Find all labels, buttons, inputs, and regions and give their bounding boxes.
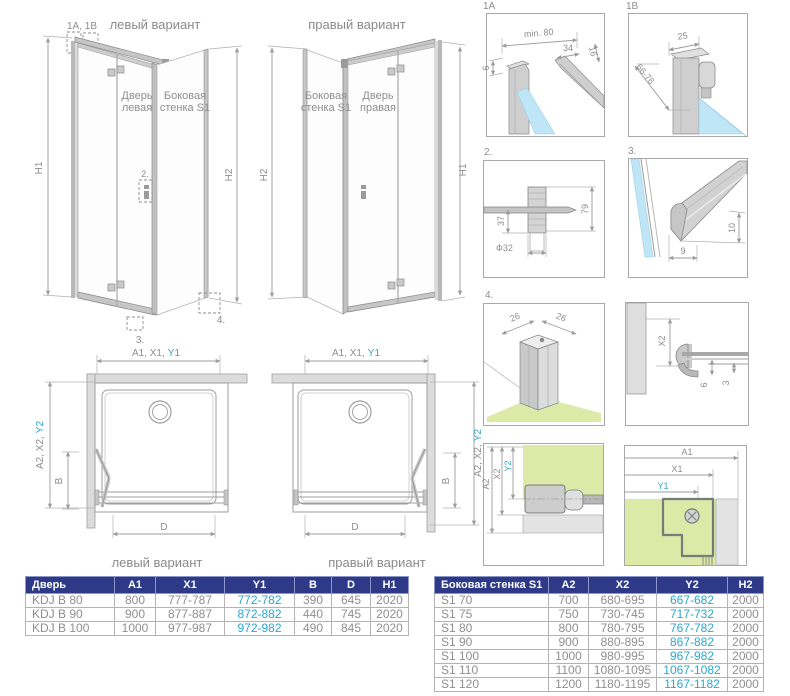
cell: 772-782 — [225, 594, 295, 608]
cell: 780-795 — [589, 622, 657, 636]
cell: 2000 — [728, 608, 764, 622]
detail-panel-2: 37 79 Ф32 — [483, 160, 605, 278]
cell: 900 — [115, 608, 156, 622]
svg-text:6: 6 — [699, 382, 709, 387]
cell: 2000 — [728, 594, 764, 608]
callout-1ab-label: 1A, 1B — [67, 21, 97, 32]
table-row: S1 100 1000 980-995 967-982 2000 — [435, 650, 764, 664]
cell: 440 — [295, 608, 332, 622]
cell: 767-782 — [657, 622, 728, 636]
table-row: KDJ B 90 900 877-887 872-882 440 745 202… — [26, 608, 409, 622]
svg-text:3: 3 — [721, 380, 731, 385]
spec-sheet: левый вариант 1A, 1B — [0, 0, 790, 696]
svg-text:34: 34 — [563, 43, 573, 53]
callout-2-label: 2. — [141, 169, 149, 179]
header-cell: A2 — [549, 577, 589, 594]
door-right-label: Дверь — [362, 90, 393, 102]
side-wall-panel — [303, 49, 343, 314]
door-panel — [78, 43, 155, 315]
cell: 800 — [115, 594, 156, 608]
x2-dimension: X2 — [646, 319, 680, 366]
wall — [627, 303, 646, 394]
wall — [523, 515, 603, 533]
cell: KDJ B 80 — [26, 594, 115, 608]
cell: 1100 — [549, 664, 589, 678]
detail-1b-drawing: 25 66-76 — [629, 14, 747, 136]
cell: 390 — [295, 594, 332, 608]
side-wall-table: Боковая стенка S1 A2 X2 Y2 H2 S1 70 700 … — [434, 576, 764, 692]
b-dimension: B — [54, 452, 79, 509]
detail-1a-number: 1A — [483, 1, 495, 12]
door-table-header-row: Дверь A1 X1 Y1 B D H1 — [26, 577, 409, 594]
shower-tray — [293, 383, 427, 512]
side-dimension: A2, X2,Y2 — [430, 382, 484, 525]
cell: 967-982 — [657, 650, 728, 664]
cell: KDJ B 90 — [26, 608, 115, 622]
door-left-label: Дверь — [121, 90, 152, 102]
detail-panel-wall-fixing: X2 6 3 — [625, 302, 749, 426]
svg-text:X2: X2 — [657, 335, 667, 346]
plan-left-drawing: A1, X1,Y1 — [35, 345, 265, 576]
cell: 1080-1095 — [589, 664, 657, 678]
plan-left-top-dim: A1, X1,Y1 — [132, 348, 180, 359]
cell: 717-732 — [657, 608, 728, 622]
cell: 2000 — [728, 650, 764, 664]
wall-profile-right — [435, 40, 442, 301]
cell: 880-895 — [589, 636, 657, 650]
table-row: S1 110 1100 1080-1095 1067-1082 2000 — [435, 664, 764, 678]
door-closed-plan — [294, 490, 427, 505]
iso-right-title: правый вариант — [308, 17, 406, 32]
header-cell: Y2 — [657, 577, 728, 594]
cell: 750 — [549, 608, 589, 622]
detail-4-drawing: 26 26 — [484, 304, 604, 425]
header-cell: A1 — [115, 577, 156, 594]
y1-dimension: Y1 — [625, 481, 698, 499]
door-closed-plan — [95, 490, 228, 505]
svg-text:стенка S1: стенка S1 — [160, 102, 210, 114]
h1-dimension: H1 — [442, 42, 469, 301]
cell: 700 — [549, 594, 589, 608]
corner-profile — [520, 335, 558, 410]
svg-text:Y2: Y2 — [503, 460, 513, 471]
cell: S1 70 — [435, 594, 549, 608]
dim-3: 3 — [721, 363, 734, 386]
cell: 2020 — [371, 622, 409, 636]
svg-text:стенка S1: стенка S1 — [301, 102, 351, 114]
table-row: S1 70 700 680-695 667-682 2000 — [435, 594, 764, 608]
d-dimension: D — [305, 515, 405, 538]
cell: S1 120 — [435, 678, 549, 692]
h2-dimension: H2 — [209, 46, 242, 304]
cell: 1067-1082 — [657, 664, 728, 678]
detail-1a-drawing: min. 80 34 16 6 — [487, 14, 604, 136]
plan-right-top-dim: A1, X1,Y1 — [332, 348, 380, 359]
svg-text:A2, X2,Y2: A2, X2,Y2 — [35, 421, 46, 469]
side-dimension: A2, X2,Y2 — [35, 382, 95, 508]
cell: 872-882 — [225, 608, 295, 622]
detail-panel-3: 9 10 — [628, 158, 748, 278]
leader-line — [484, 362, 520, 388]
side-wall-panel — [157, 49, 208, 315]
cell: 680-695 — [589, 594, 657, 608]
svg-text:X1: X1 — [671, 464, 682, 474]
x2-dimension: X2 — [492, 447, 523, 515]
detail-3-drawing: 9 10 — [629, 159, 747, 277]
svg-text:B: B — [441, 477, 452, 484]
detail-panel-1b: 25 66-76 — [628, 13, 748, 137]
svg-text:25: 25 — [677, 30, 688, 41]
table-row: KDJ B 80 800 777-787 772-782 390 645 202… — [26, 594, 409, 608]
side-table-header-row: Боковая стенка S1 A2 X2 Y2 H2 — [435, 577, 764, 594]
detail-2-drawing: 37 79 Ф32 — [484, 161, 604, 277]
svg-text:16: 16 — [587, 45, 599, 57]
cell: 900 — [549, 636, 589, 650]
detail-2-number: 2. — [484, 147, 492, 158]
detail-panel-4: 26 26 — [483, 303, 605, 426]
detail-door-plan-drawing: A1 X1 Y1 — [625, 446, 746, 565]
svg-text:6: 6 — [481, 65, 491, 70]
header-cell: Дверь — [26, 577, 115, 594]
svg-text:D: D — [160, 522, 167, 533]
plan-right-drawing: A1, X1,Y1 — [265, 345, 490, 576]
cell: 1180-1195 — [589, 678, 657, 692]
cell: 777-787 — [156, 594, 225, 608]
h1-dimension: H1 — [34, 36, 72, 297]
support-bar — [555, 56, 604, 108]
svg-text:H1: H1 — [458, 163, 469, 176]
corner-post — [152, 63, 157, 315]
plan-right-caption: правый вариант — [328, 555, 426, 570]
b-dimension: B — [441, 453, 461, 508]
iso-left-drawing: левый вариант 1A, 1B — [28, 5, 258, 350]
cell: 667-682 — [657, 594, 728, 608]
y2-dimension: Y2 — [503, 447, 523, 499]
cell: 745 — [332, 608, 371, 622]
detail-1b-number: 1B — [626, 1, 638, 12]
table-row: S1 75 750 730-745 717-732 2000 — [435, 608, 764, 622]
knob — [528, 187, 546, 251]
door-panel — [348, 43, 435, 312]
detail-sidewall-plan-drawing: A2 X2 Y2 — [484, 444, 603, 565]
header-cell: X1 — [156, 577, 225, 594]
cell: 1000 — [549, 650, 589, 664]
svg-text:A1: A1 — [681, 447, 692, 457]
cell: S1 90 — [435, 636, 549, 650]
svg-text:левая: левая — [122, 102, 152, 114]
cell: S1 80 — [435, 622, 549, 636]
iso-right-drawing: правый вариант — [262, 5, 480, 350]
svg-text:A2: A2 — [481, 478, 491, 489]
cell: 1000 — [115, 622, 156, 636]
callout-3-box — [127, 317, 143, 330]
header-cell: H2 — [728, 577, 764, 594]
cell: 490 — [295, 622, 332, 636]
detail-panel-sidewall-plan: A2 X2 Y2 — [483, 443, 604, 566]
dim-34: 34 — [557, 43, 579, 58]
callout-4-label: 4. — [217, 315, 225, 326]
detail-panel-door-plan: A1 X1 Y1 — [624, 445, 747, 566]
handle — [361, 185, 366, 199]
cell: 645 — [332, 594, 371, 608]
table-row: KDJ B 100 1000 977-987 972-982 490 845 2… — [26, 622, 409, 636]
detail-wall-fixing-drawing: X2 6 3 — [626, 303, 748, 425]
svg-text:min. 80: min. 80 — [524, 27, 554, 40]
table-row: S1 90 900 880-895 867-882 2000 — [435, 636, 764, 650]
svg-text:правая: правая — [360, 102, 396, 114]
svg-text:26: 26 — [508, 311, 521, 324]
cell: 2000 — [728, 664, 764, 678]
header-cell: Y1 — [225, 577, 295, 594]
dim-6: 6 — [481, 58, 503, 76]
cell: 2000 — [728, 678, 764, 692]
svg-text:D: D — [351, 522, 358, 533]
plan-left-caption: левый вариант — [112, 555, 203, 570]
svg-text:B: B — [54, 477, 65, 484]
shower-tray — [95, 383, 228, 512]
iso-left-title: левый вариант — [110, 17, 201, 32]
svg-text:H2: H2 — [259, 168, 270, 181]
cell: S1 75 — [435, 608, 549, 622]
cell: 800 — [549, 622, 589, 636]
cell: 972-982 — [225, 622, 295, 636]
dim-26-left: 26 — [502, 311, 534, 334]
header-cell: D — [332, 577, 371, 594]
dim-16: 16 — [587, 44, 599, 62]
cell: S1 100 — [435, 650, 549, 664]
svg-text:37: 37 — [496, 216, 506, 226]
door-table: Дверь A1 X1 Y1 B D H1 KDJ B 80 800 777-7… — [25, 576, 409, 636]
cell: 980-995 — [589, 650, 657, 664]
header-cell: Боковая стенка S1 — [435, 577, 549, 594]
detail-4-number: 4. — [485, 290, 493, 301]
d-dimension: D — [113, 515, 215, 538]
dim-26-right: 26 — [542, 311, 576, 334]
rod — [484, 207, 576, 213]
svg-text:H2: H2 — [224, 168, 235, 181]
wall-profile-left — [71, 41, 78, 298]
table-row: S1 120 1200 1180-1195 1167-1182 2000 — [435, 678, 764, 692]
header-cell: B — [295, 577, 332, 594]
table-row: S1 80 800 780-795 767-782 2000 — [435, 622, 764, 636]
cell: 2020 — [371, 594, 409, 608]
detail-panel-1a: min. 80 34 16 6 — [486, 13, 605, 137]
cell: KDJ B 100 — [26, 622, 115, 636]
cell: 977-987 — [156, 622, 225, 636]
side-wall-label: Боковая — [164, 90, 206, 102]
svg-text:H1: H1 — [34, 161, 45, 174]
cell: S1 110 — [435, 664, 549, 678]
header-cell: H1 — [371, 577, 409, 594]
cell: 1167-1182 — [657, 678, 728, 692]
svg-text:9: 9 — [680, 246, 685, 256]
h2-dimension: H2 — [259, 46, 307, 299]
svg-text:Y1: Y1 — [657, 481, 668, 491]
handle — [144, 185, 149, 199]
detail-3-number: 3. — [628, 146, 636, 157]
svg-text:X2: X2 — [492, 468, 502, 479]
glass — [631, 159, 653, 257]
cell: 2020 — [371, 608, 409, 622]
cell: 730-745 — [589, 608, 657, 622]
cell: 1200 — [549, 678, 589, 692]
svg-text:26: 26 — [555, 311, 568, 324]
cell: 877-887 — [156, 608, 225, 622]
cell: 845 — [332, 622, 371, 636]
wall — [716, 499, 738, 565]
cell: 867-882 — [657, 636, 728, 650]
side-wall-label: Боковая — [305, 90, 347, 102]
svg-text:10: 10 — [727, 223, 737, 233]
svg-text:Ф32: Ф32 — [496, 243, 513, 253]
glass — [699, 98, 746, 136]
svg-text:66-76: 66-76 — [634, 62, 656, 86]
header-cell: X2 — [589, 577, 657, 594]
x1-dimension: X1 — [625, 464, 713, 499]
cell: 2000 — [728, 622, 764, 636]
dim-37: 37 — [496, 210, 530, 233]
cell: 2000 — [728, 636, 764, 650]
svg-text:79: 79 — [580, 204, 590, 214]
